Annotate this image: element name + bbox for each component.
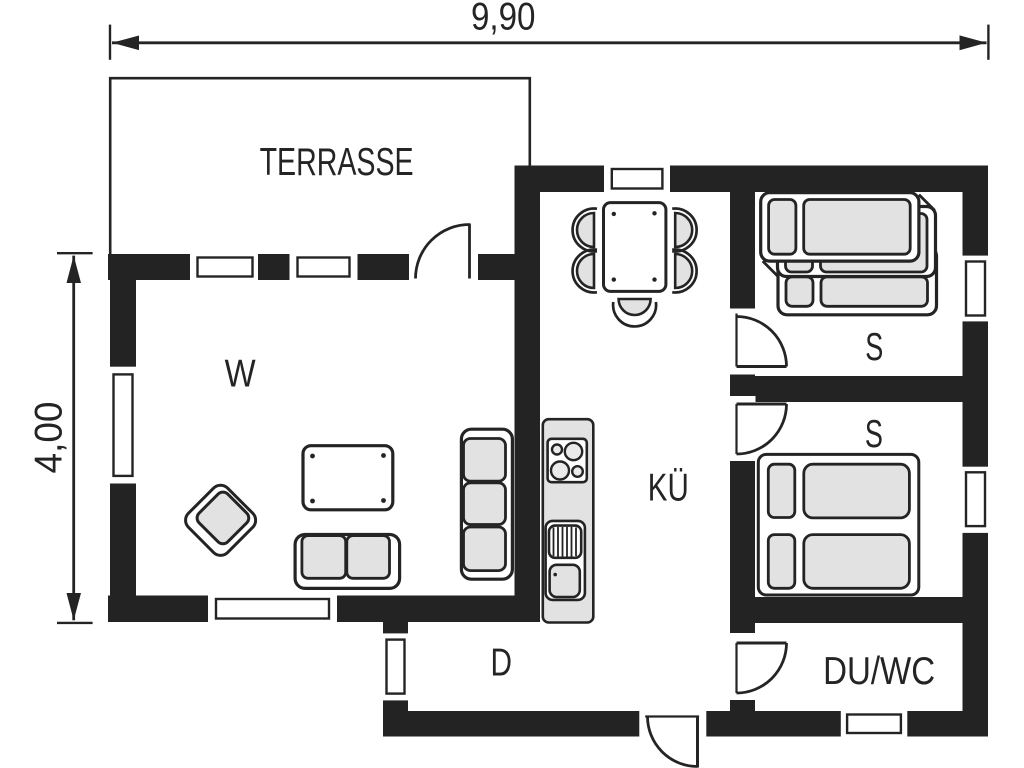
svg-text:DU/WC: DU/WC [823, 650, 935, 693]
svg-text:KÜ: KÜ [648, 467, 689, 510]
svg-text:9,90: 9,90 [471, 0, 536, 39]
svg-text:S: S [865, 413, 883, 456]
svg-text:4,00: 4,00 [28, 402, 71, 474]
svg-text:W: W [225, 352, 256, 395]
svg-text:S: S [865, 326, 883, 369]
svg-text:D: D [490, 642, 512, 685]
svg-text:TERRASSE: TERRASSE [260, 141, 414, 184]
